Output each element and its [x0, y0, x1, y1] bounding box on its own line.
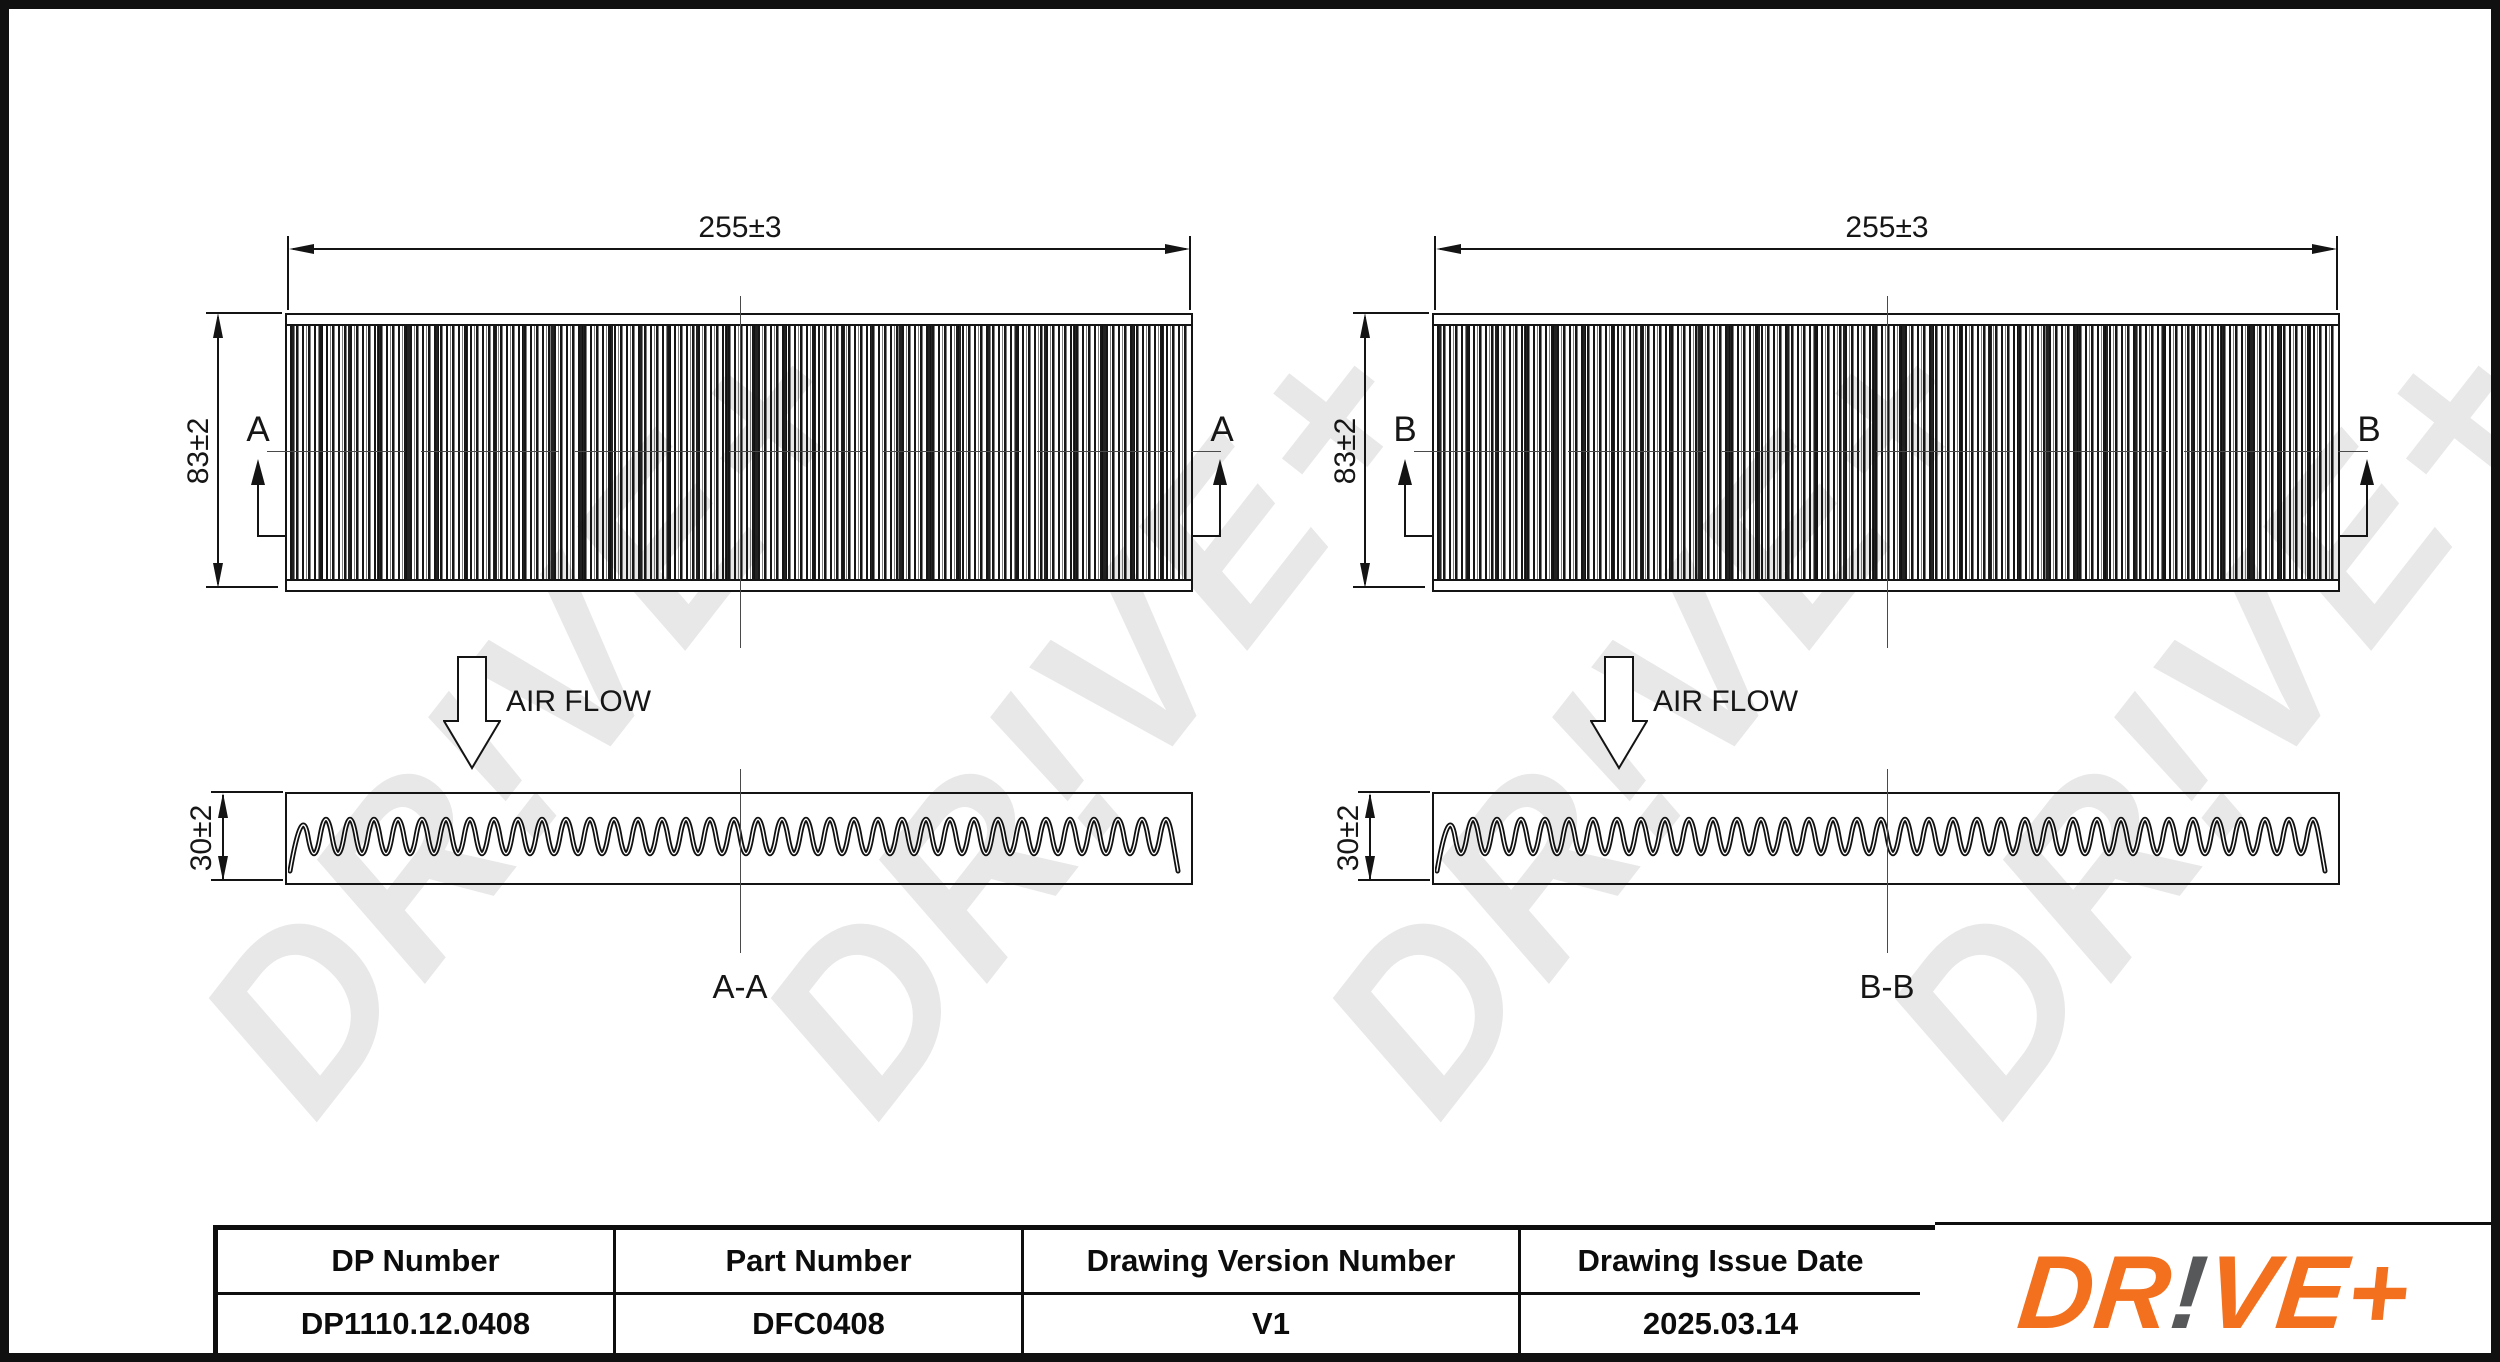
- brand-logo: DR!VE+: [2013, 1241, 2414, 1345]
- filter-end-cap-bottom: [1434, 579, 2338, 590]
- filter-end-cap-top: [287, 315, 1191, 326]
- filter-end-cap-bottom: [287, 579, 1191, 590]
- filter-element-top-view: [285, 313, 1193, 592]
- section-arrow-icon: [2360, 459, 2374, 485]
- airflow-arrow-icon: [1590, 656, 1648, 770]
- pleat-wave: [288, 795, 1186, 878]
- dimension-arrow-down-icon: [218, 856, 228, 881]
- dimension-arrow-up-icon: [213, 313, 223, 338]
- logo-text-ve-plus: VE+: [2201, 1235, 2416, 1351]
- section-centerline: [1887, 769, 1888, 953]
- horizontal-centerline: [267, 451, 1221, 452]
- extension-line: [1353, 586, 1425, 588]
- extension-line: [1358, 879, 1430, 881]
- dimension-arrow-down-icon: [213, 563, 223, 588]
- vertical-centerline: [1887, 296, 1888, 648]
- section-view-label: B-B: [1827, 968, 1947, 1006]
- extension-line: [206, 312, 282, 314]
- table-value-part-number: DFC0408: [613, 1292, 1021, 1353]
- extension-line: [206, 586, 278, 588]
- section-arrow-shaft: [2366, 483, 2368, 537]
- section-marker-letter: B: [1383, 412, 1427, 448]
- dimension-arrow-up-icon: [218, 793, 228, 818]
- height-dimension-label: 83±2: [182, 381, 216, 521]
- depth-dimension-label: 30±2: [185, 768, 219, 908]
- section-view-label: A-A: [680, 968, 800, 1006]
- height-dimension-label: 83±2: [1329, 381, 1363, 521]
- table-header-dp-number: DP Number: [218, 1230, 613, 1292]
- table-value-dp-number: DP1110.12.0408: [218, 1292, 613, 1353]
- filter-view-b: 255±3 83±2 B B AIR FLOW: [1147, 0, 2402, 1210]
- table-header-part-number: Part Number: [613, 1230, 1021, 1292]
- section-centerline: [740, 769, 741, 953]
- title-block-table: DP Number Part Number Drawing Version Nu…: [213, 1225, 1945, 1362]
- logo-text-dr: DR: [2013, 1235, 2177, 1351]
- section-arrow-leader: [257, 535, 285, 537]
- airflow-label: AIR FLOW: [506, 686, 651, 718]
- dimension-arrow-up-icon: [1365, 793, 1375, 818]
- filter-pleats-front: [1437, 326, 2335, 579]
- width-dimension-label: 255±3: [640, 211, 840, 245]
- airflow-arrow-icon: [443, 656, 501, 770]
- table-value-issue-date: 2025.03.14: [1518, 1292, 1920, 1353]
- section-marker-letter: B: [2347, 412, 2391, 448]
- section-marker-letter: A: [236, 412, 280, 448]
- dimension-arrow-right-icon: [2312, 244, 2337, 254]
- logo-cell: DR!VE+: [1935, 1222, 2493, 1361]
- dimension-arrow-left-icon: [1436, 244, 1461, 254]
- filter-pleats-front: [290, 326, 1188, 579]
- section-arrow-leader: [1404, 535, 1432, 537]
- table-value-version-number: V1: [1021, 1292, 1518, 1353]
- width-dimension-line: [293, 248, 1186, 250]
- dimension-arrow-down-icon: [1360, 563, 1370, 588]
- dimension-arrow-up-icon: [1360, 313, 1370, 338]
- depth-dimension-label: 30±2: [1332, 768, 1366, 908]
- width-dimension-line: [1440, 248, 2333, 250]
- horizontal-centerline: [1414, 451, 2368, 452]
- section-arrow-shaft: [257, 483, 259, 537]
- extension-line: [211, 791, 283, 793]
- table-header-version-number: Drawing Version Number: [1021, 1230, 1518, 1292]
- extension-line: [2336, 236, 2338, 310]
- filter-view-a: 255±3 83±2 A A A: [0, 0, 1255, 1210]
- airflow-label: AIR FLOW: [1653, 686, 1798, 718]
- pleat-wave: [1435, 795, 2333, 878]
- filter-end-cap-top: [1434, 315, 2338, 326]
- section-arrow-leader: [2340, 535, 2368, 537]
- vertical-centerline: [740, 296, 741, 648]
- width-dimension-label: 255±3: [1787, 211, 1987, 245]
- extension-line: [211, 879, 283, 881]
- table-header-issue-date: Drawing Issue Date: [1518, 1230, 1920, 1292]
- filter-element-top-view: [1432, 313, 2340, 592]
- extension-line: [287, 236, 289, 310]
- dimension-arrow-down-icon: [1365, 856, 1375, 881]
- section-arrow-shaft: [1404, 483, 1406, 537]
- section-arrow-icon: [1398, 459, 1412, 485]
- height-dimension-line: [217, 317, 219, 584]
- extension-line: [1353, 312, 1429, 314]
- drawing-sheet: DR!VE+ DR!VE+ DR!VE+ DR!VE+ 255±3 83±2 A: [0, 0, 2500, 1362]
- dimension-arrow-left-icon: [289, 244, 314, 254]
- section-arrow-icon: [251, 459, 265, 485]
- height-dimension-line: [1364, 317, 1366, 584]
- extension-line: [1434, 236, 1436, 310]
- extension-line: [1358, 791, 1430, 793]
